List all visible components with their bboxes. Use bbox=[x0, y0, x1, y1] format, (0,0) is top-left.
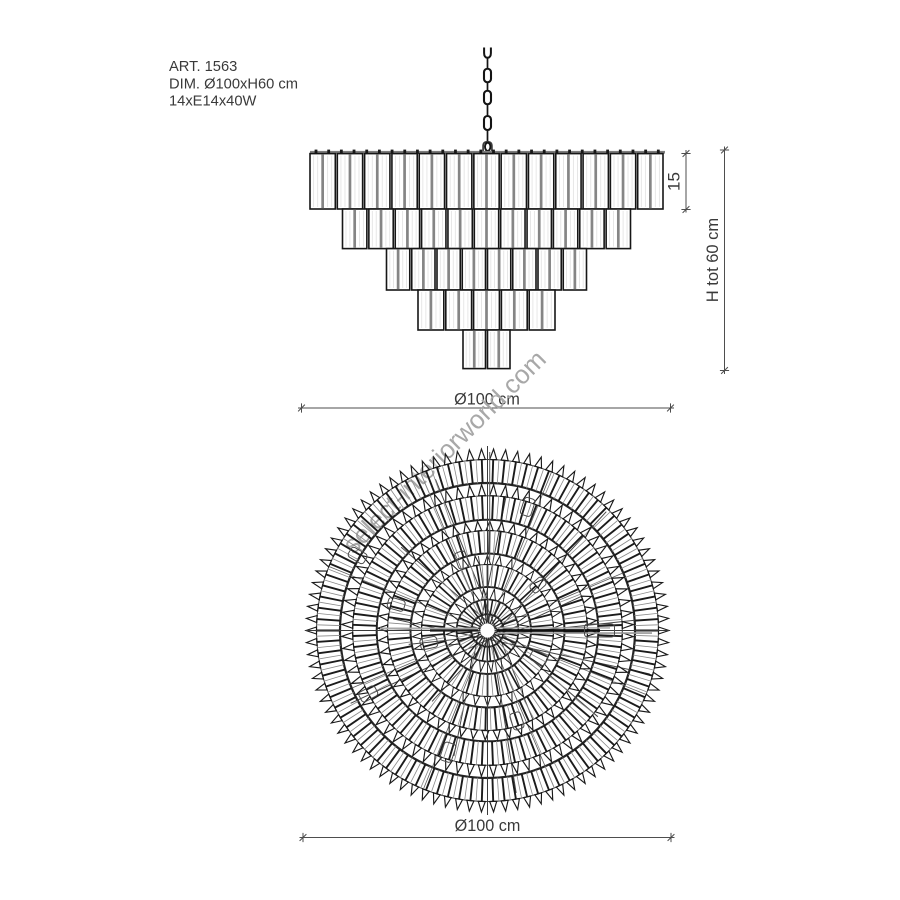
svg-text:Ø100 cm: Ø100 cm bbox=[455, 817, 521, 835]
svg-text:ART. 1563: ART. 1563 bbox=[169, 59, 237, 75]
svg-text:14xE14x40W: 14xE14x40W bbox=[169, 94, 256, 110]
svg-text:DIM. Ø100xH60 cm: DIM. Ø100xH60 cm bbox=[169, 77, 298, 93]
svg-text:15: 15 bbox=[665, 172, 684, 191]
svg-text:H tot 60 cm: H tot 60 cm bbox=[704, 218, 722, 302]
